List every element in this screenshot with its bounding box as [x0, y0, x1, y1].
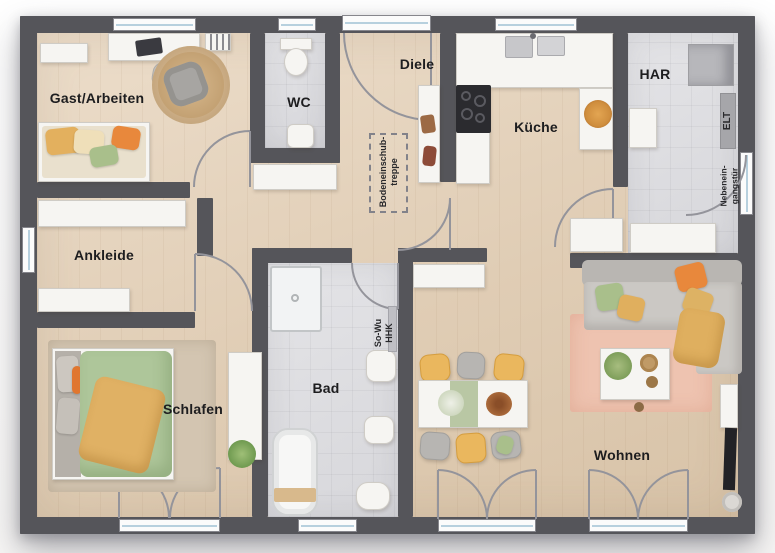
- wall-wc-bottom: [250, 148, 340, 163]
- room-label-kueche: Küche: [514, 119, 558, 135]
- attic-stairs-line2: treppe: [389, 137, 400, 208]
- wall-wc-left: [250, 33, 265, 163]
- wall-ankleide-east: [197, 198, 213, 256]
- toilet: [356, 482, 390, 510]
- window-wc: [278, 18, 316, 31]
- hall-cabinet: [253, 164, 337, 190]
- wall-kitchen-east: [613, 33, 628, 187]
- wall-schlafen-north: [37, 312, 195, 328]
- electrical-text: ELT: [722, 112, 735, 130]
- bookshelf: [205, 33, 231, 51]
- table-bowl: [486, 392, 512, 416]
- burner: [461, 108, 473, 120]
- kitchen-counter-top: [456, 33, 613, 88]
- electrical-label: ELT: [722, 112, 735, 130]
- storage-tank: [688, 44, 734, 86]
- pouf: [722, 492, 742, 512]
- tray: [646, 376, 658, 388]
- french-door-schlafen: [119, 519, 220, 532]
- heating-line2: HHK: [384, 319, 395, 347]
- plant: [228, 440, 256, 468]
- burner: [474, 95, 486, 107]
- window-bad: [298, 519, 357, 532]
- bathroom-sink: [366, 350, 396, 382]
- cabinet: [40, 43, 88, 63]
- wall-gast-south: [37, 182, 190, 198]
- wall-dining-north: [398, 248, 487, 262]
- har-bench: [630, 223, 716, 253]
- side-entrance-line1: Nebenein-: [718, 165, 729, 206]
- tray: [640, 354, 658, 372]
- french-door-wohnen-left: [438, 519, 536, 532]
- tv: [723, 428, 737, 490]
- table-flowers: [438, 390, 464, 416]
- side-entrance-line2: gangstür: [729, 165, 740, 206]
- vase: [634, 402, 644, 412]
- heating-line1: So-Wu: [373, 319, 384, 347]
- room-label-har: HAR: [640, 66, 671, 82]
- wc-sink: [287, 124, 314, 148]
- room-label-bad: Bad: [312, 380, 339, 396]
- dining-chair-gray: [456, 351, 485, 379]
- attic-stairs-label: Bodeneinschub- treppe: [378, 137, 401, 208]
- room-label-wohnen: Wohnen: [594, 447, 650, 463]
- room-label-schlafen: Schlafen: [163, 401, 223, 417]
- washing-machine: [629, 108, 657, 148]
- sofa-throw-mustard: [671, 306, 726, 369]
- attic-stairs-line1: Bodeneinschub-: [378, 137, 389, 208]
- room-label-diele: Diele: [400, 56, 434, 72]
- wall-kitchen-west: [440, 33, 456, 182]
- heating-label: So-Wu HHK: [373, 319, 396, 347]
- hall-sideboard: [418, 85, 440, 183]
- side-entrance-door: [740, 152, 753, 215]
- tall-cabinet: [570, 218, 623, 252]
- wall-bad-east: [398, 248, 413, 517]
- kitchen-sink: [537, 36, 565, 56]
- bathroom-sink: [364, 416, 394, 444]
- room-label-gast-arbeiten: Gast/Arbeiten: [50, 90, 144, 106]
- wardrobe-top: [38, 200, 186, 227]
- wall-wc-right: [325, 33, 340, 163]
- room-label-wc: WC: [287, 94, 311, 110]
- window-gast: [113, 18, 196, 31]
- bathtub-caddy: [274, 488, 316, 502]
- dining-chair-yellow: [455, 432, 487, 464]
- window-ankleide: [22, 227, 35, 273]
- wall-bad-north: [252, 248, 352, 263]
- wall-outer-left: [20, 16, 37, 534]
- side-entrance-label: Nebenein- gangstür: [718, 165, 739, 206]
- bathtub: [272, 428, 318, 516]
- toilet-bowl: [284, 48, 308, 76]
- sideboard: [413, 264, 485, 288]
- french-door-wohnen-right: [589, 519, 688, 532]
- window-kitchen: [495, 18, 577, 31]
- wardrobe-bottom: [38, 288, 130, 312]
- burner: [461, 91, 471, 101]
- fruit-bowl: [584, 100, 612, 128]
- room-label-ankleide: Ankleide: [74, 247, 134, 263]
- burner: [475, 113, 485, 123]
- dining-chair-yellow: [493, 353, 526, 384]
- coffee-table-plant: [604, 352, 632, 380]
- floor-plan: Gast/Arbeiten WC Diele Küche HAR Ankleid…: [0, 0, 775, 553]
- dining-chair-gray: [419, 431, 451, 461]
- kitchen-sink: [505, 36, 533, 58]
- sofa-pillow-mustard: [616, 294, 646, 323]
- shower-drain: [291, 294, 299, 302]
- entrance-door: [342, 15, 431, 31]
- bed-pillow: [55, 397, 80, 435]
- bag: [422, 145, 437, 166]
- media-shelf: [720, 384, 738, 428]
- dining-chair-yellow: [419, 353, 451, 384]
- shoes: [420, 114, 436, 134]
- faucet: [530, 33, 536, 39]
